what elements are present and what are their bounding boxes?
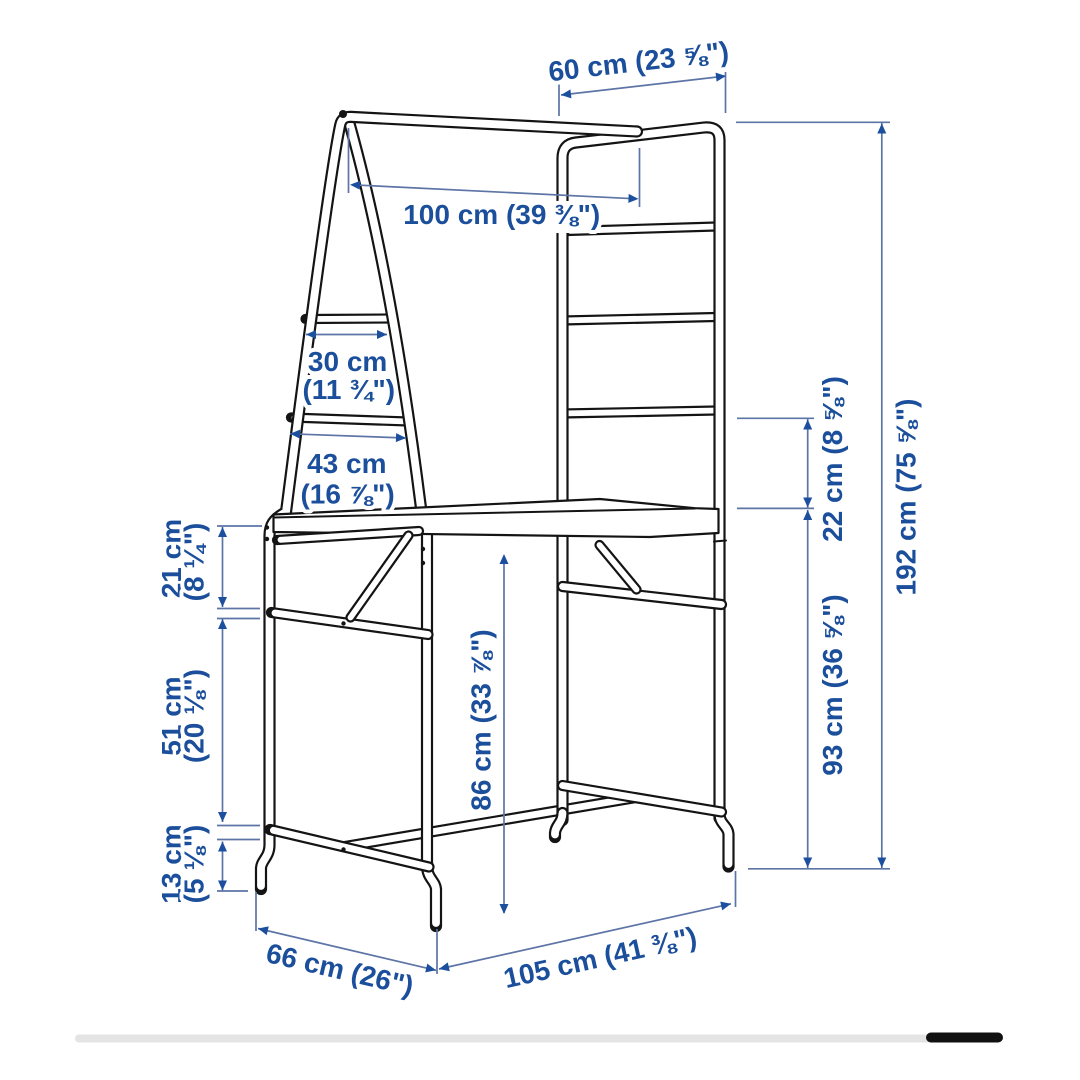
svg-text:(20 ⅛"): (20 ⅛") (179, 669, 210, 763)
svg-text:(11 ¾"): (11 ¾") (302, 374, 395, 405)
svg-text:(16 ⅞"): (16 ⅞") (300, 479, 394, 510)
svg-text:192 cm (75 ⅝"): 192 cm (75 ⅝") (891, 399, 922, 596)
svg-text:86 cm (33 ⅞"): 86 cm (33 ⅞") (466, 629, 497, 810)
svg-text:43 cm: 43 cm (307, 448, 386, 479)
svg-text:93 cm (36 ⅝"): 93 cm (36 ⅝") (817, 594, 848, 775)
svg-text:100 cm (39 ⅜"): 100 cm (39 ⅜") (403, 199, 600, 230)
svg-text:30 cm: 30 cm (308, 346, 387, 377)
svg-text:22 cm (8 ⅝"): 22 cm (8 ⅝") (817, 376, 848, 542)
svg-text:(5 ⅛"): (5 ⅛") (179, 825, 210, 904)
svg-text:(8 ¼"): (8 ¼") (179, 523, 210, 602)
